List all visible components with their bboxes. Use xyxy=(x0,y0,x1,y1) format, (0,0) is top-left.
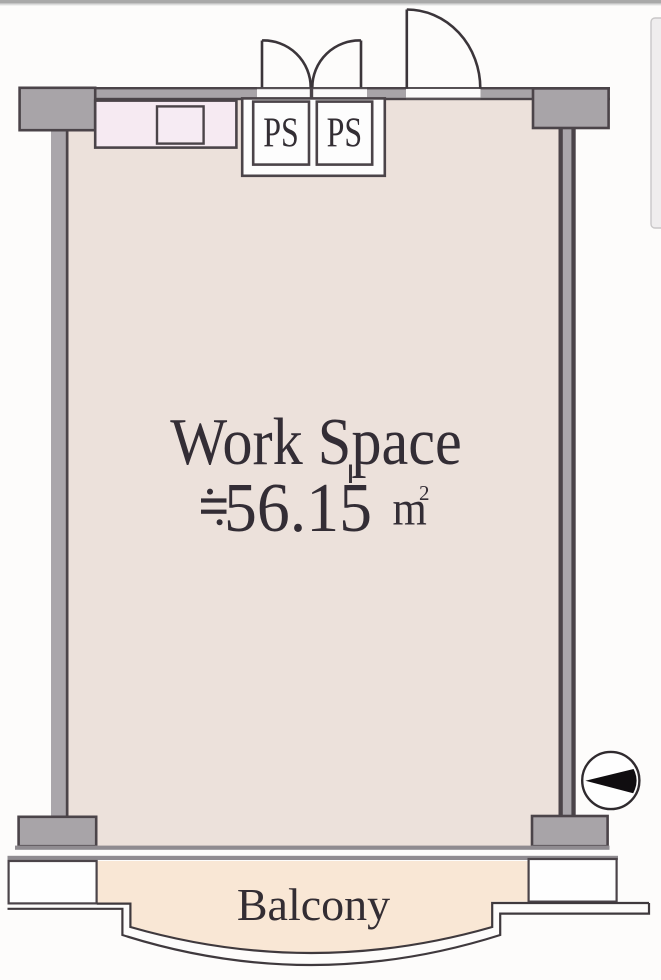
svg-text:PS: PS xyxy=(327,110,363,156)
svg-text:2: 2 xyxy=(419,481,430,505)
svg-text:PS: PS xyxy=(263,110,299,156)
svg-text:Balcony: Balcony xyxy=(237,879,390,930)
